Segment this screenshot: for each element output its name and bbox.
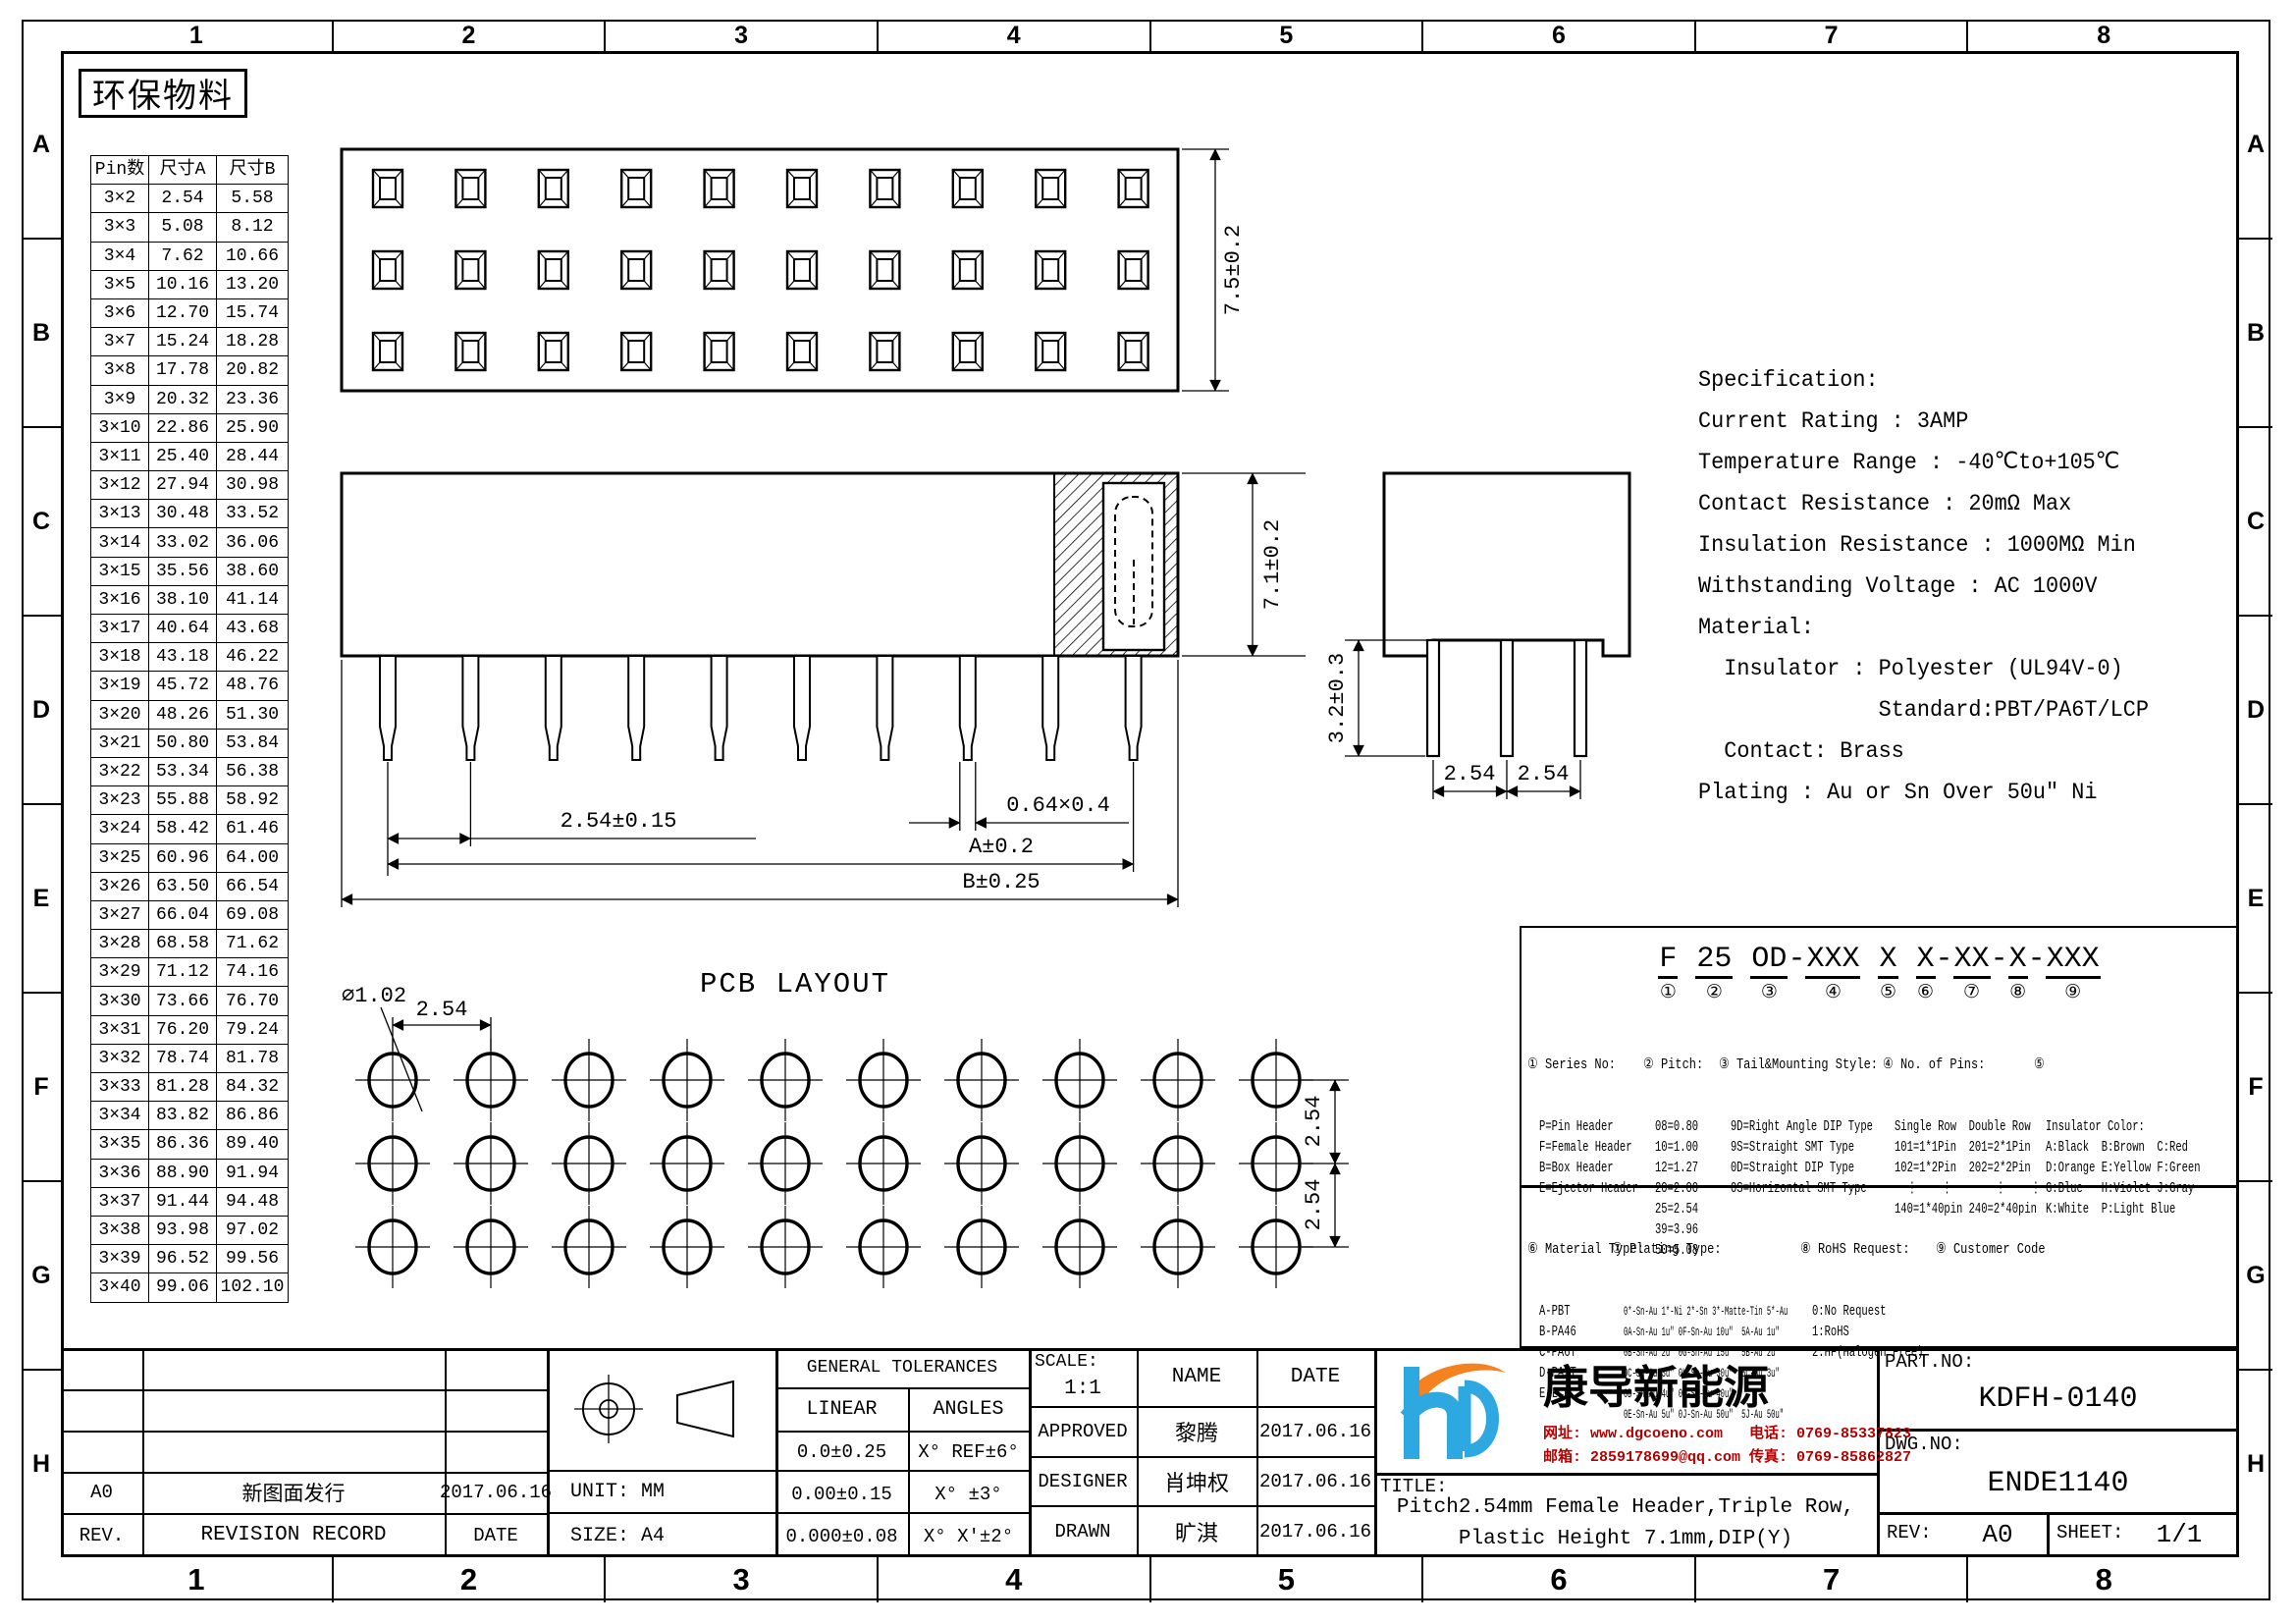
table-row: 3×1125.4028.44 [91,442,289,470]
border-col-label: 2 [334,20,607,51]
border-row-label: F [22,994,61,1182]
list-item: 0S=Horizontal SMT Type [1731,1178,1873,1199]
hole-grid [355,1039,1313,1288]
part-number-code: F① 25② OD③ - XXX④ X⑤ X⑥ - XX⑦ - X⑧ - XXX… [1520,943,2239,1002]
drawing-title-line1: Pitch2.54mm Female Header,Triple Row, [1374,1492,1877,1522]
projection-symbol-icon [564,1360,761,1458]
border-col-label: 5 [1151,1557,1424,1602]
table-row: 3×3176.2079.24 [91,1015,289,1044]
eco-material-label: 环保物料 [79,69,247,118]
tolerance-rows: 0.0±0.25X° REF±6° 0.00±0.15X° ±3° 0.000±… [775,1431,1029,1557]
top-view-drawing: 7.5±0.2 [324,137,1306,412]
approval-row: APPROVED黎腾2017.06.16 [1029,1406,1374,1456]
name-header: NAME [1137,1348,1256,1406]
list-item: 12=1.27 [1655,1158,1699,1178]
table-row: 3×2971.1274.16 [91,958,289,987]
company-contact-line1: 网址: www.dgcoeno.com 电话: 0769-85337823 [1543,1422,1911,1442]
approval-row: DRAWN旷淇2017.06.16 [1029,1506,1374,1556]
dwg-no-value: ENDE1140 [1877,1461,2239,1506]
list-item: 0A-Sn-Au 1u″ 0F-Sn-Au 10u″ 5A-Au 1u″ [1624,1322,1788,1342]
dim-pin-size: 0.64×0.4 [1006,793,1110,818]
part-code-segment: X⑥ [1898,943,1936,1002]
col-header-dim-a: 尺寸A [149,156,217,185]
table-row: 3×3996.5299.56 [91,1245,289,1273]
drawing-sheet: 12345678 12345678 ABCDEFGH ABCDEFGH 环保物料… [0,0,2296,1624]
part-code-segment: OD③ [1733,943,1788,1002]
spec-line: Insulation Resistance : 1000MΩ Min [1698,524,2149,566]
company-logo-icon [1382,1353,1534,1469]
part-code-segment: X⑤ [1860,943,1897,1002]
pin-row [380,656,1142,760]
col-header-pins: Pin数 [91,156,149,185]
list-item: ⋮ ⋮ ⋮ ⋮ [1895,1178,2041,1199]
sheet-value: 1/1 [2130,1514,2228,1555]
border-col-label: 1 [61,20,334,51]
table-row: 3×1433.0236.06 [91,528,289,557]
border-column-labels-bottom: 12345678 [61,1557,2239,1602]
dim-b: B±0.25 [962,870,1040,894]
dim-body-height-top: 7.5±0.2 [1221,225,1246,315]
table-row: 3×35.088.12 [91,213,289,242]
border-row-label: H [22,1371,61,1557]
list-item: A:Black B:Brown C:Red [2046,1137,2201,1158]
dim-row-pitch-v2: 2.54 [1302,1179,1326,1231]
part-code-segment: - XXX⑨ [2028,943,2101,1002]
dim-row-pitch-v1: 2.54 [1302,1096,1326,1148]
spec-line: Temperature Range : -40℃to+105℃ [1698,442,2149,483]
border-col-label: 7 [1696,1557,1969,1602]
scale-value: 1:1 [1029,1373,1137,1404]
table-row: 3×3893.9897.02 [91,1216,289,1244]
spec-line: Material: [1698,607,2149,648]
approval-row: DESIGNER肖坤权2017.06.16 [1029,1456,1374,1506]
table-row: 3×1227.9430.98 [91,471,289,500]
tolerance-row: 0.0±0.25X° REF±6° [775,1431,1029,1473]
border-row-label: C [2239,428,2272,617]
list-item: D:Orange E:Yellow F:Green [2046,1158,2201,1178]
table-row: 3×1638.1041.14 [91,585,289,614]
table-row: 3×817.7820.82 [91,356,289,385]
list-item: 08=0.80 [1655,1116,1699,1137]
table-row: 3×3586.3689.40 [91,1130,289,1159]
spec-line: Contact Resistance : 20mΩ Max [1698,483,2149,524]
table-row: 3×2048.2651.30 [91,700,289,729]
table-row: 3×2253.3456.38 [91,757,289,785]
list-item: 101=1*1Pin 201=2*1Pin [1895,1137,2041,1158]
list-item: B=Box Header [1539,1158,1638,1178]
border-col-label: 8 [1968,1557,2239,1602]
table-row: 3×4099.06102.10 [91,1273,289,1302]
border-row-label: G [22,1182,61,1371]
table-row: 3×22.545.58 [91,185,289,213]
general-tolerances-header: GENERAL TOLERANCES [775,1348,1029,1387]
approval-rows: APPROVED黎腾2017.06.16 DESIGNER肖坤权2017.06.… [1029,1406,1374,1556]
revision-header-row: REV. REVISION RECORD DATE [61,1513,547,1557]
dim-tail-length: 3.2±0.3 [1325,653,1350,743]
table-row: 3×612.7015.74 [91,298,289,327]
border-row-label: A [2239,51,2272,240]
border-row-label: H [2239,1371,2272,1557]
table-row: 3×3278.7481.78 [91,1044,289,1072]
list-item: 0D=Straight DIP Type [1731,1158,1873,1178]
list-item: 102=1*2Pin 202=2*2Pin [1895,1158,2041,1178]
part-code-segment: - XX⑦ [1936,943,1991,1002]
company-contact-line2: 邮箱: 2859178699@qq.com 传真: 0769-85862827 [1543,1445,1911,1466]
table-row: 3×1945.7248.76 [91,672,289,700]
list-item: 0:No Request [1812,1301,1923,1322]
date-header: DATE [1256,1348,1374,1406]
spec-line: Current Rating : 3AMP [1698,401,2149,442]
dim-pin-pitch: 2.54±0.15 [561,809,677,834]
list-item: Single Row Double Row [1895,1116,2041,1137]
border-row-label: D [2239,617,2272,805]
list-item: 9D=Right Angle DIP Type [1731,1116,1873,1137]
table-row: 3×3791.4494.48 [91,1187,289,1216]
border-col-label: 3 [606,1557,879,1602]
drawing-title-line2: Plastic Height 7.1mm,DIP(Y) [1374,1524,1877,1553]
table-row: 3×920.3223.36 [91,385,289,413]
angles-header: ANGLES [908,1387,1029,1431]
dim-hole-pitch: 2.54 [416,998,468,1022]
dim-a: A±0.2 [969,835,1034,859]
list-item: P=Pin Header [1539,1116,1638,1137]
part-no-value: KDFH-0140 [1877,1377,2239,1422]
list-item: F=Female Header [1539,1137,1638,1158]
spec-line: Withstanding Voltage : AC 1000V [1698,566,2149,607]
dim-body-height-side: 7.1±0.2 [1260,519,1285,610]
border-col-label: 3 [606,20,879,51]
tolerance-row: 0.00±0.15X° ±3° [775,1473,1029,1515]
border-row-label: C [22,428,61,617]
spec-line: Specification: [1698,359,2149,401]
table-row: 3×2560.9664.00 [91,843,289,872]
spec-line: Plating : Au or Sn Over 50u″ Ni [1698,772,2149,813]
table-row: 3×510.1613.20 [91,270,289,298]
table-row: 3×2150.8053.84 [91,729,289,757]
table-row: 3×2868.5871.62 [91,930,289,958]
border-col-label: 5 [1151,20,1424,51]
pcb-layout-drawing: 2.54 ⌀1.02 2.54 2.54 [324,972,1364,1296]
border-column-labels-top: 12345678 [61,20,2239,51]
border-row-label: D [22,617,61,805]
table-row: 3×3483.8286.86 [91,1102,289,1130]
table-row: 3×2663.5066.54 [91,872,289,900]
table-row: 3×1330.4833.52 [91,500,289,528]
table-row: 3×1535.5638.60 [91,557,289,585]
border-col-label: 4 [879,20,1151,51]
border-col-label: 8 [1968,20,2239,51]
border-col-label: 7 [1696,20,1969,51]
specification-block: Specification:Current Rating : 3AMPTempe… [1698,236,2149,813]
size-label: SIZE: A4 [559,1514,787,1557]
spec-line: Standard:PBT/PA6T/LCP [1698,689,2149,731]
table-row: 3×1843.1846.22 [91,643,289,672]
end-pin-row [1427,640,1586,756]
border-col-label: 4 [879,1557,1151,1602]
side-view-drawing: 7.1±0.2 2.54±0.15 0.64×0.4 A±0.2 B±0.25 [324,454,1335,915]
legend-customer-code: ⑨ Customer Code [1936,1198,2072,1301]
spec-line: Insulator : Polyester (UL94V-0) [1698,648,2149,689]
border-col-label: 2 [334,1557,607,1602]
part-code-segment: - XXX④ [1788,943,1860,1002]
border-row-label: A [22,51,61,240]
border-row-label: B [22,240,61,428]
part-code-segment: - X⑧ [1991,943,2028,1002]
tolerance-row: 0.000±0.08X° X'±2° [775,1515,1029,1557]
list-item: Insulator Color: [2046,1116,2201,1137]
list-item: 1:RoHS [1812,1322,1923,1342]
list-item: G:Blue H:Violet J:Gray [2046,1178,2201,1199]
dim-row-pitch-1: 2.54 [1444,762,1496,786]
border-row-label: B [2239,240,2272,428]
revision-row: A0新图面发行2017.06.16 [61,1472,547,1513]
table-row: 3×47.6210.66 [91,242,289,270]
list-item: E=Ejector Header [1539,1178,1638,1199]
border-row-labels-right: ABCDEFGH [2239,51,2272,1557]
pin-dimension-table: Pin数 尺寸A 尺寸B 3×22.545.58 3×35.088.12 3×4… [90,155,289,1303]
linear-header: LINEAR [775,1387,908,1431]
table-row: 3×3688.9091.94 [91,1159,289,1187]
dwg-no-label: DWG.NO: [1885,1434,2032,1457]
rev-value: A0 [1953,1514,2042,1555]
dim-row-pitch-2: 2.54 [1518,762,1570,786]
table-row: 3×3381.2884.32 [91,1073,289,1102]
table-header-row: Pin数 尺寸A 尺寸B [91,156,289,185]
list-item: 20=2.00 [1655,1178,1699,1199]
border-row-label: E [2239,805,2272,994]
list-item: 10=1.00 [1655,1137,1699,1158]
table-row: 3×1740.6443.68 [91,615,289,643]
dim-hole-diameter: ⌀1.02 [342,984,406,1008]
border-row-label: E [22,805,61,994]
table-row: 3×1022.8625.90 [91,413,289,442]
unit-label: UNIT: MM [559,1472,787,1512]
table-row: 3×3073.6676.70 [91,987,289,1015]
col-header-dim-b: 尺寸B [217,156,289,185]
part-no-label: PART.NO: [1885,1351,2032,1375]
spec-line: Contact: Brass [1698,731,2149,772]
border-col-label: 6 [1423,20,1696,51]
end-view-drawing: 2.54 2.54 3.2±0.3 [1315,454,1708,827]
rev-label: REV: [1887,1522,1955,1545]
table-row: 3×2458.4261.46 [91,815,289,843]
part-code-segment: F① [1658,943,1678,1002]
list-item: 0*-Sn-Au 1*-Ni 2*-Sn 3*-Matte-Tin 5*-Au [1624,1301,1788,1322]
border-col-label: 6 [1423,1557,1696,1602]
list-item: 9S=Straight SMT Type [1731,1137,1873,1158]
border-row-labels-left: ABCDEFGH [22,51,61,1557]
table-row: 3×715.2418.28 [91,328,289,356]
border-col-label: 1 [61,1557,334,1602]
company-name: 康导新能源 [1543,1355,1873,1414]
table-row: 3×2766.0469.08 [91,900,289,929]
table-row: 3×2355.8858.92 [91,786,289,815]
part-code-segment: 25② [1678,943,1733,1002]
